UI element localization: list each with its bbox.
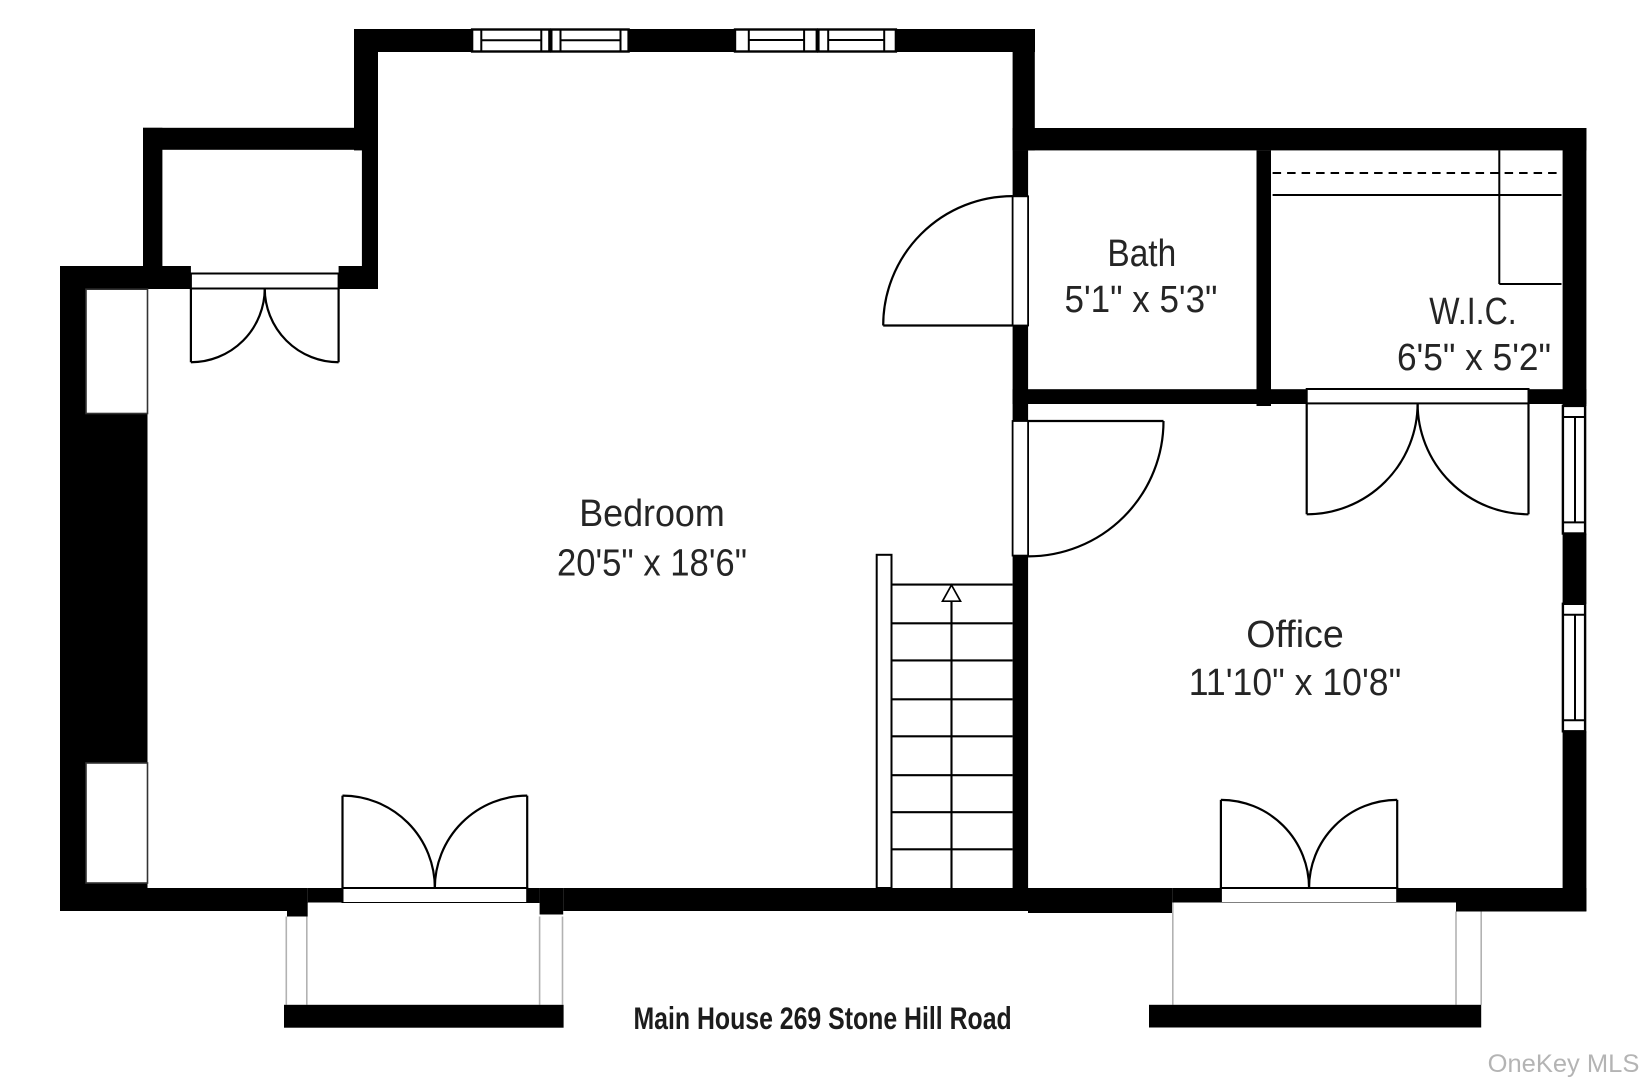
svg-text:Office: Office [1246,614,1344,656]
svg-text:W.I.C.: W.I.C. [1429,291,1516,333]
svg-text:Bedroom: Bedroom [579,493,725,535]
svg-text:OneKey MLS: OneKey MLS [1488,1050,1640,1078]
svg-text:Bath: Bath [1107,233,1176,275]
svg-text:5'1" x 5'3": 5'1" x 5'3" [1065,279,1218,321]
svg-text:20'5" x 18'6": 20'5" x 18'6" [557,542,747,584]
svg-text:6'5" x 5'2": 6'5" x 5'2" [1397,337,1551,379]
svg-text:11'10" x 10'8": 11'10" x 10'8" [1189,662,1402,704]
svg-text:Main House 269 Stone Hill Road: Main House 269 Stone Hill Road [633,1000,1011,1036]
